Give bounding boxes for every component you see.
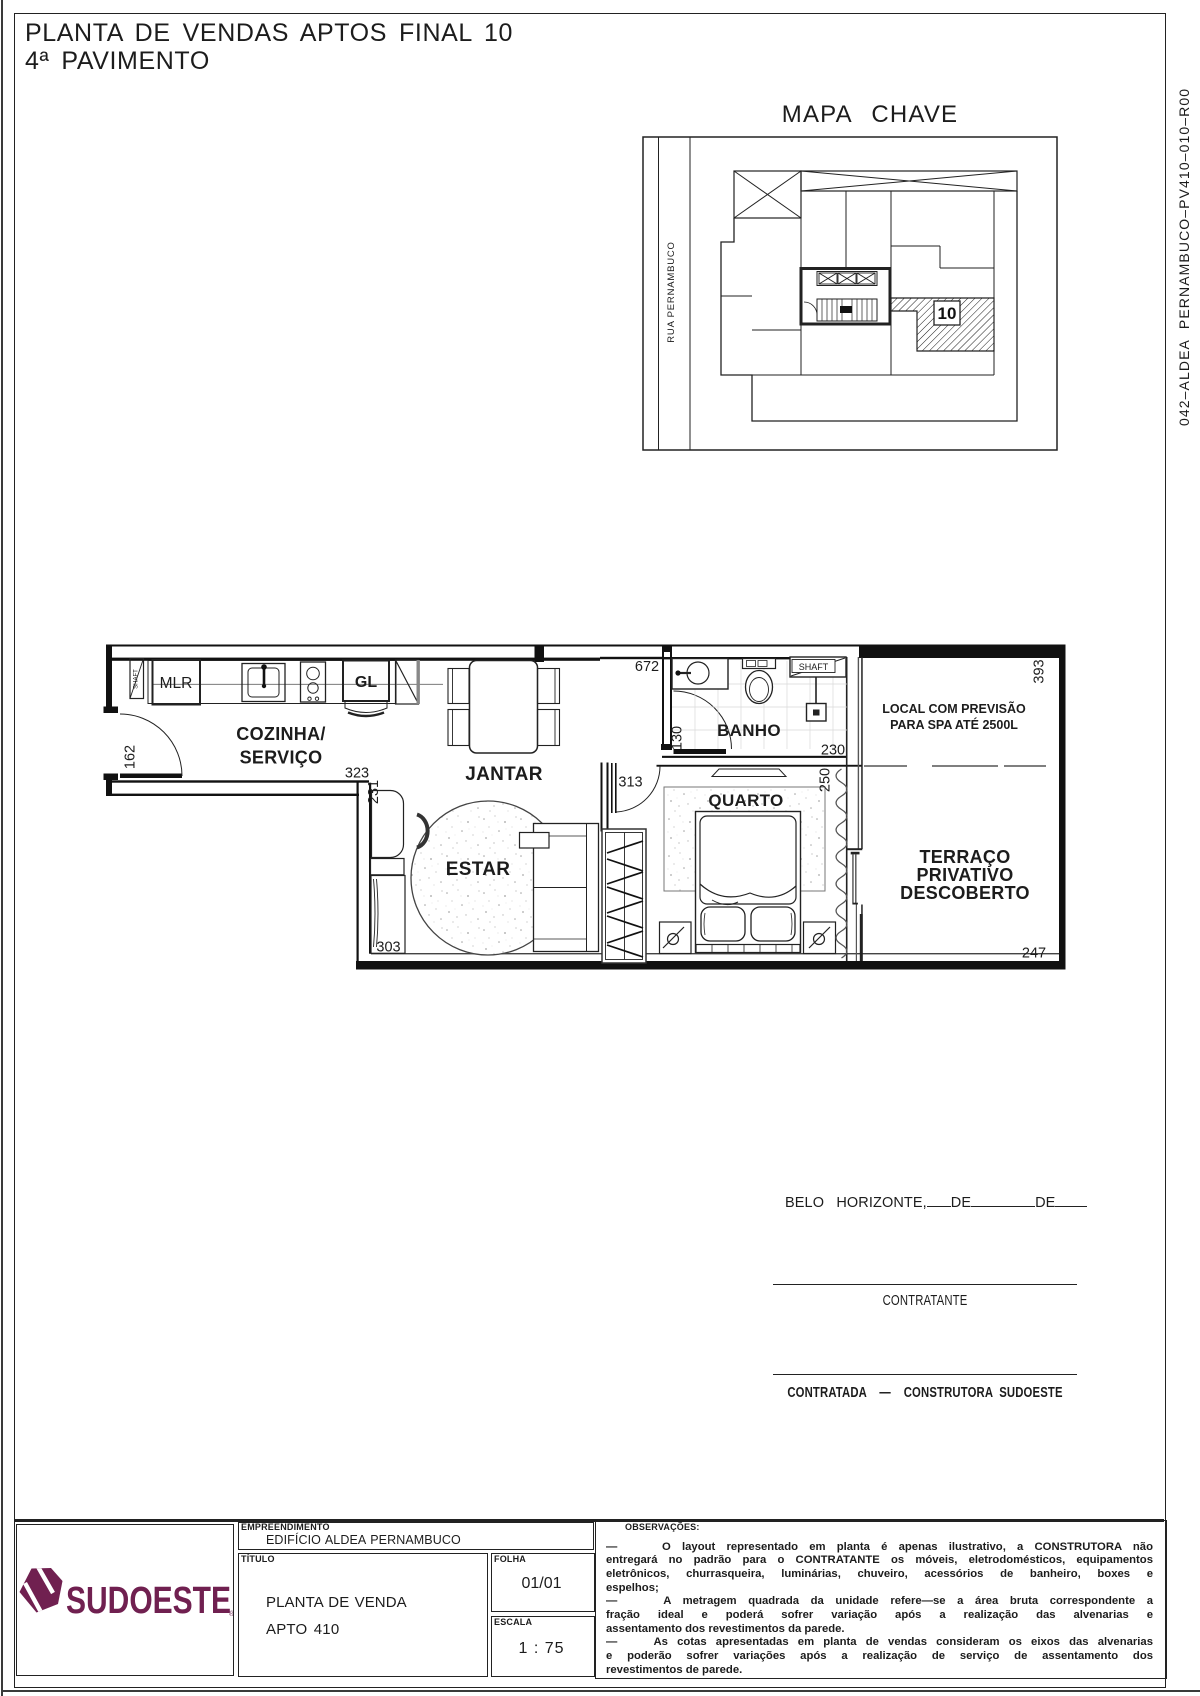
svg-text:230: 230 <box>821 743 845 759</box>
svg-text:313: 313 <box>618 775 642 791</box>
svg-text:DESCOBERTO: DESCOBERTO <box>900 883 1030 903</box>
svg-text:SHAFT: SHAFT <box>134 669 140 689</box>
svg-text:SUDOESTE: SUDOESTE <box>66 1580 231 1622</box>
svg-text:303: 303 <box>376 940 400 956</box>
svg-text:SERVIÇO: SERVIÇO <box>240 748 323 768</box>
svg-text:LOCAL COM PREVISÃO: LOCAL COM PREVISÃO <box>882 701 1026 716</box>
svg-text:QUARTO: QUARTO <box>708 791 783 810</box>
svg-text:COZINHA/: COZINHA/ <box>236 724 325 744</box>
svg-text:393: 393 <box>1032 659 1048 683</box>
svg-text:162: 162 <box>123 745 139 769</box>
svg-text:JANTAR: JANTAR <box>465 764 542 785</box>
svg-text:323: 323 <box>345 766 369 782</box>
svg-text:250: 250 <box>818 768 834 792</box>
svg-text:672: 672 <box>635 659 659 675</box>
svg-text:247: 247 <box>1022 946 1046 962</box>
svg-text:PARA SPA ATÉ 2500L: PARA SPA ATÉ 2500L <box>890 717 1018 732</box>
svg-text:130: 130 <box>670 726 686 750</box>
svg-text:231: 231 <box>366 780 382 804</box>
svg-text:10: 10 <box>938 304 957 323</box>
svg-text:ESTAR: ESTAR <box>446 859 510 880</box>
svg-text:MLR: MLR <box>160 675 193 692</box>
svg-text:PRIVATIVO: PRIVATIVO <box>916 865 1013 885</box>
svg-text:®: ® <box>229 1610 233 1618</box>
svg-text:BANHO: BANHO <box>717 721 781 740</box>
svg-text:GL: GL <box>355 674 377 691</box>
svg-text:SHAFT: SHAFT <box>799 662 829 672</box>
svg-text:TERRAÇO: TERRAÇO <box>919 847 1010 867</box>
svg-text:RUA PERNAMBUCO: RUA PERNAMBUCO <box>666 241 677 342</box>
